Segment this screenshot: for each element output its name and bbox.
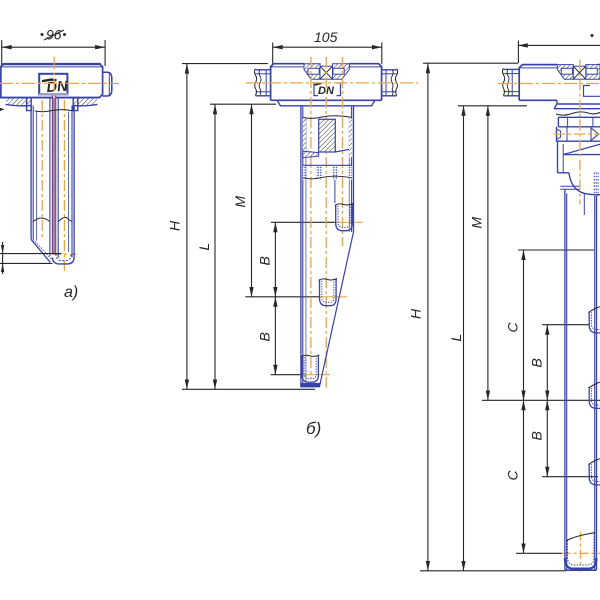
- svg-text:б): б): [306, 419, 321, 438]
- svg-text:M: M: [232, 196, 248, 208]
- svg-text:C: C: [505, 322, 521, 333]
- svg-text:105: 105: [314, 29, 338, 45]
- svg-text:C: C: [505, 470, 521, 481]
- svg-text:L: L: [196, 243, 212, 251]
- svg-text:B: B: [529, 358, 545, 367]
- svg-text:H: H: [408, 308, 424, 319]
- svg-text:B: B: [257, 256, 273, 265]
- svg-text:L: L: [448, 334, 464, 342]
- svg-text:B: B: [529, 431, 545, 440]
- svg-text:H: H: [167, 220, 183, 231]
- svg-text:B: B: [257, 332, 273, 341]
- svg-text:а): а): [64, 284, 78, 301]
- svg-text:M: M: [469, 217, 485, 229]
